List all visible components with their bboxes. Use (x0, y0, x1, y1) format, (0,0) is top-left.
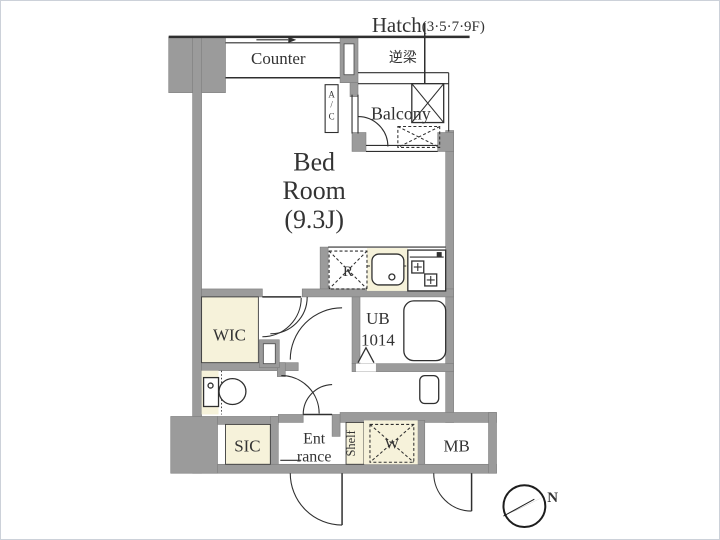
bedroom-label-line3: (9.3J) (284, 205, 344, 234)
north-label: N (547, 490, 558, 506)
ub-door-mark-icon (358, 348, 374, 363)
wall-sic-top (218, 416, 279, 424)
floor-plan-drawing: N Hatch (3·5·7·9F) Counter 逆梁 Balcony A … (1, 1, 719, 539)
wall-w-mb-divider (418, 420, 425, 464)
ub-label-line1: UB (366, 309, 390, 328)
niche-inner (263, 344, 275, 364)
wall-entrance-right-stub (332, 414, 340, 436)
wall-sic-right (270, 416, 278, 464)
wall-mb-right (489, 412, 497, 473)
wall-kitchen-stub (320, 247, 328, 291)
wic-door-arc (262, 298, 301, 337)
wall-balcony-post (350, 83, 358, 97)
hall-door-arc (270, 297, 307, 334)
wall-left (193, 37, 202, 473)
sink-icon (372, 254, 404, 285)
entrance-label-line1: Ent (303, 430, 326, 447)
wall-balcony-corner-left (352, 133, 366, 152)
counter-label: Counter (251, 49, 306, 68)
ub-label-line2: 1014 (361, 331, 395, 350)
wall-wic-top (202, 289, 263, 297)
hatch-floors-label: (3·5·7·9F) (422, 19, 485, 35)
bedroom-label-line1: Bed (293, 147, 335, 176)
mb-label: MB (443, 436, 469, 455)
refrigerator-label: R (343, 264, 353, 280)
ac-label-a: A (328, 90, 335, 100)
washroom-door-arc (290, 308, 342, 360)
entrance-label-line2: rance (297, 448, 331, 465)
compass-icon: N (503, 485, 558, 527)
entrance-door-arc (290, 473, 342, 525)
ub-door-opening (356, 364, 376, 372)
bathtub-icon (404, 301, 446, 361)
bedroom-label-line2: Room (283, 176, 346, 205)
balcony-label: Balcony (371, 104, 431, 124)
mb-door-arc (434, 473, 472, 511)
floor-plan-canvas: N Hatch (3·5·7·9F) Counter 逆梁 Balcony A … (0, 0, 720, 540)
toilet-icon (204, 378, 246, 407)
wic-label: WIC (213, 326, 246, 345)
reverse-beam-label: 逆梁 (389, 50, 417, 66)
wall-entrance-top (278, 414, 303, 422)
wall-right (446, 131, 454, 423)
wall-bottom (193, 464, 497, 473)
ac-label-c: C (329, 112, 335, 122)
ac-label-slash: / (330, 100, 333, 110)
toilet-door-arc (281, 376, 319, 414)
washbasin-icon (420, 376, 439, 404)
sic-label: SIC (234, 436, 260, 455)
hatch-label: Hatch (372, 13, 422, 37)
shelf-label: Shelf (344, 429, 358, 456)
balcony-hatch-lower-icon (398, 127, 440, 148)
column-window (344, 44, 354, 75)
entrance-inner-door-arc (303, 385, 332, 415)
washer-label: W (385, 436, 400, 452)
wall-ub-left (352, 297, 360, 364)
wall-block-bottomleft (171, 416, 218, 473)
stove-icon (408, 250, 446, 291)
